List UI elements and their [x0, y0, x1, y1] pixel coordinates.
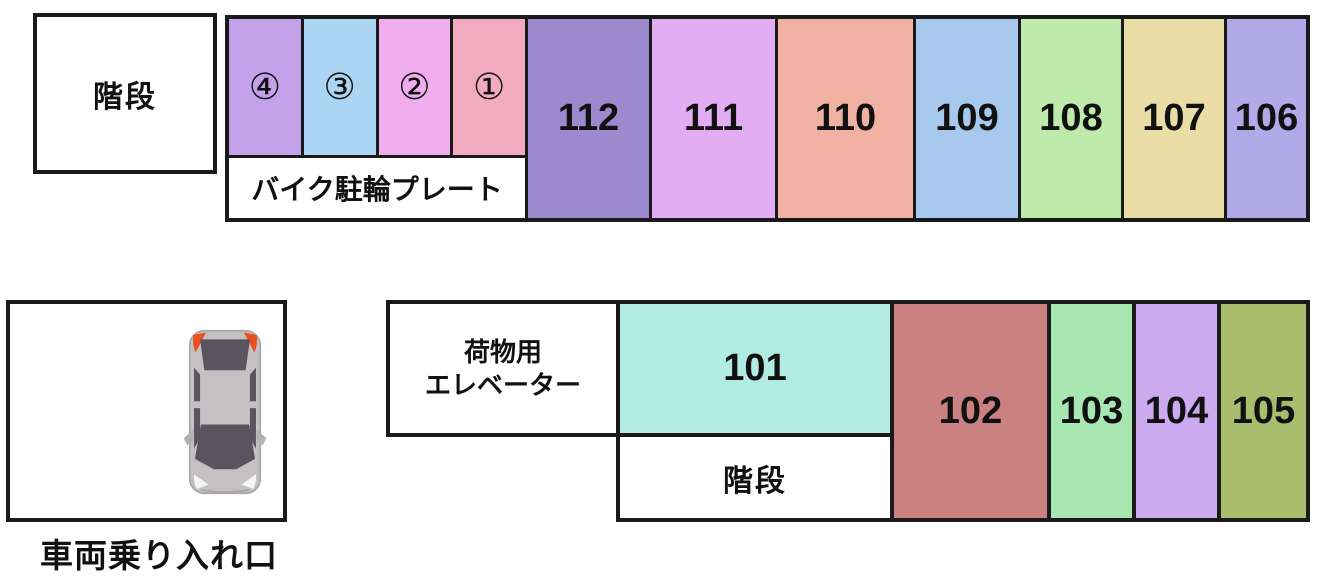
upper-parking-row: ④ ③ ② ① バイク駐輪プレート 112 111 110 109 108 10…	[225, 15, 1310, 222]
bike-plate-caption-label: バイク駐輪プレート	[251, 168, 502, 208]
vehicle-entrance-label: 車両乗り入れ口	[40, 529, 278, 577]
bike-plate-caption: バイク駐輪プレート	[229, 155, 525, 218]
spot-109-number: 109	[935, 97, 998, 140]
bike-plate-block: ④ ③ ② ① バイク駐輪プレート	[229, 19, 525, 218]
bike-plate-strip: ④ ③ ② ①	[229, 19, 525, 155]
parking-spot-109: 109	[913, 19, 1018, 218]
stairs-box-bottom: 階段	[616, 433, 894, 522]
spot-103-number: 103	[1060, 390, 1123, 433]
bike-plate-2: ②	[379, 19, 454, 155]
freight-elevator-label-line2: エレベーター	[425, 369, 581, 402]
bike-plate-4: ④	[229, 19, 304, 155]
stairs-bottom-label: 階段	[723, 456, 787, 500]
parking-spot-107: 107	[1121, 19, 1224, 218]
freight-elevator-box: 荷物用 エレベーター	[386, 300, 620, 437]
spot-108-number: 108	[1039, 97, 1102, 140]
stairs-box-top: 階段	[33, 13, 217, 174]
parking-floor-plan: { "colors": { "border": "#1a1a1a", "back…	[0, 0, 1330, 576]
spot-106-number: 106	[1235, 97, 1298, 140]
bike-plate-3-label: ③	[323, 66, 355, 108]
spot-107-number: 107	[1142, 97, 1205, 140]
freight-elevator-label-line1: 荷物用	[464, 336, 542, 369]
vehicle-entrance-box	[6, 300, 287, 522]
bike-plate-2-label: ②	[398, 66, 430, 108]
parking-spot-101: 101	[616, 300, 894, 437]
spot-102-number: 102	[939, 390, 1002, 433]
bike-plate-4-label: ④	[249, 66, 281, 108]
parking-spot-102: 102	[890, 300, 1051, 522]
spot-105-number: 105	[1232, 390, 1295, 433]
parking-spot-111: 111	[649, 19, 775, 218]
spot-110-number: 110	[815, 97, 876, 140]
bike-plate-3: ③	[304, 19, 379, 155]
spot-111-number: 111	[684, 97, 743, 140]
parking-spot-112: 112	[525, 19, 649, 218]
parking-spot-104: 104	[1132, 300, 1221, 522]
parking-spot-110: 110	[775, 19, 913, 218]
spot-112-number: 112	[558, 97, 619, 140]
parking-spot-106: 106	[1224, 19, 1306, 218]
parking-spot-105: 105	[1217, 300, 1310, 522]
parking-spot-108: 108	[1018, 19, 1121, 218]
spot-104-number: 104	[1145, 390, 1208, 433]
bike-plate-1: ①	[453, 19, 525, 155]
bike-plate-1-label: ①	[473, 66, 505, 108]
parking-spot-103: 103	[1047, 300, 1136, 522]
spot-101-number: 101	[723, 347, 786, 390]
car-top-view-icon	[182, 320, 268, 504]
stairs-top-label: 階段	[93, 72, 157, 116]
